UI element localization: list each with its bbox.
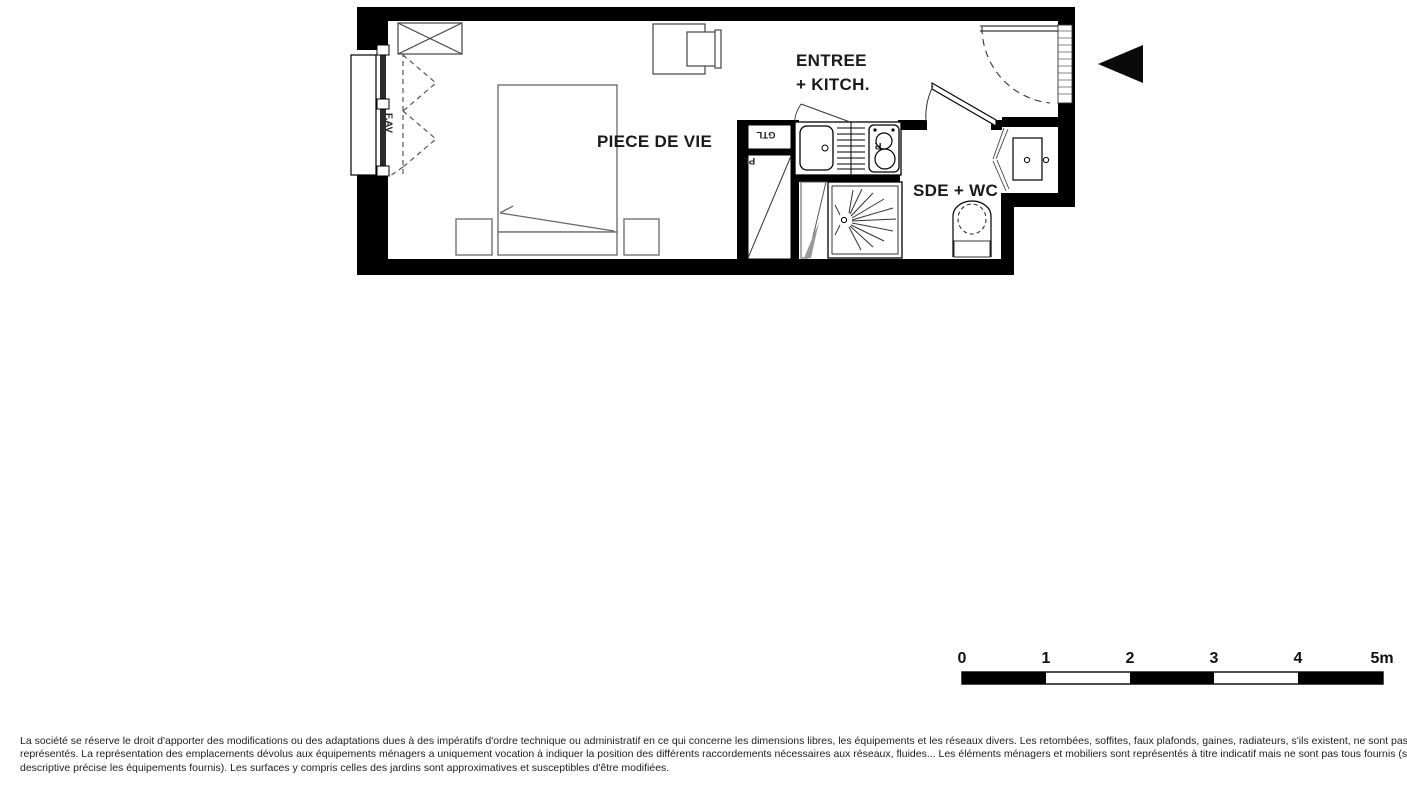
entrance-door-leaf (1058, 25, 1072, 103)
entry-label-line1: ENTREE (796, 51, 867, 70)
scale-tick-0: 0 (958, 650, 967, 667)
bathroom-door-leaf (932, 83, 996, 126)
cooktop-knob (891, 128, 894, 131)
chair (687, 32, 716, 66)
bed-foot (498, 232, 617, 255)
bed (498, 85, 617, 255)
closet-box (748, 155, 791, 259)
window-frame-tick (377, 99, 389, 109)
entrance-door-swing (982, 27, 1050, 103)
vanity-cabinet (1013, 138, 1042, 180)
scale-tick-2: 2 (1126, 650, 1135, 667)
entrance-arrow-icon (1098, 45, 1143, 83)
shower (828, 182, 902, 258)
entry-label-line2: + KITCH. (796, 75, 870, 94)
nightstand-left (456, 219, 492, 255)
window-swing-dashed (390, 52, 436, 176)
scale-bar-segment (1298, 672, 1383, 684)
floor-plan-drawing: PIECE DE VIE ENTREE + KITCH. SDE + WC GT… (0, 0, 1407, 800)
bathroom-door-swing (926, 86, 933, 122)
wardrobe (398, 23, 462, 54)
floor-plan-page: PIECE DE VIE ENTREE + KITCH. SDE + WC GT… (0, 0, 1407, 800)
scale-tick-3: 3 (1210, 650, 1219, 667)
window-sill (351, 55, 376, 175)
window-glass (380, 49, 386, 175)
cabinet-door-leaf (801, 104, 850, 122)
toilet (953, 201, 991, 257)
scale-tick-1: 1 (1042, 650, 1051, 667)
wall-right-lower (1001, 193, 1014, 275)
window (351, 45, 436, 176)
gtl-label: GTL (756, 129, 775, 140)
living-room-label: PIECE DE VIE (597, 132, 712, 151)
bathroom-label: SDE + WC (913, 181, 998, 200)
disclaimer-text: La société se réserve le droit d'apporte… (20, 735, 1390, 775)
window-frame-tick (377, 166, 389, 176)
disclaimer-line-1: La société se réserve le droit d'apporte… (20, 735, 1390, 748)
cabinet-door-swing (795, 104, 801, 122)
disclaimer-line-2: représentés. La représentation des empla… (20, 748, 1390, 761)
shower-room-door (801, 182, 826, 258)
wall-closet-left (737, 120, 748, 260)
fridge-label: R (874, 140, 881, 151)
wall-top (357, 7, 1075, 21)
wall-sde-door-left (898, 120, 927, 130)
scale-tick-5: 5m (1370, 650, 1393, 667)
entrance-door (980, 25, 1072, 103)
nightstand-right (624, 219, 659, 255)
pl-label: PL (743, 155, 755, 166)
washbasin (993, 128, 1049, 191)
bed-mattress (498, 85, 617, 232)
scale-bar: 0 1 2 3 4 5m (958, 650, 1394, 684)
basin-tap (1043, 157, 1048, 162)
bathroom-door (926, 83, 996, 126)
toilet-tank (954, 241, 990, 257)
scale-tick-4: 4 (1294, 650, 1303, 667)
window-frame-tick (377, 45, 389, 55)
wall-nook-top (1002, 117, 1058, 127)
scale-bar-segment (962, 672, 1046, 684)
cooktop-knob (873, 128, 876, 131)
window-label: F.AV (383, 113, 394, 134)
desk-and-chair (653, 24, 721, 74)
chair-back (715, 30, 721, 68)
wall-left-upper (357, 7, 388, 50)
scale-bar-segment (1130, 672, 1214, 684)
kitchenette (795, 104, 901, 175)
disclaimer-line-3: descriptive précise les équipements four… (20, 762, 1390, 775)
wall-bottom (357, 259, 1013, 275)
